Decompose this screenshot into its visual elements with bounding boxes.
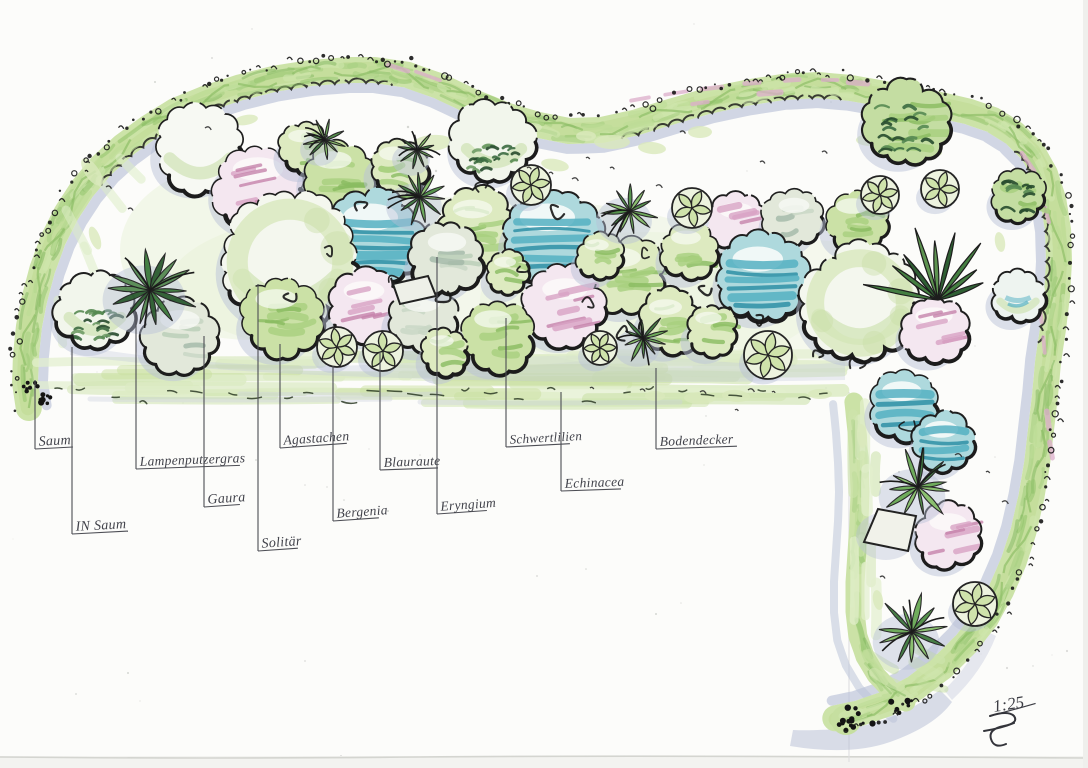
svg-text:Solitär: Solitär xyxy=(261,534,302,552)
svg-text:Blauraute: Blauraute xyxy=(383,453,440,470)
svg-text:IN Saum: IN Saum xyxy=(74,517,126,535)
svg-text:Gaura: Gaura xyxy=(207,490,246,508)
svg-text:Bodendecker: Bodendecker xyxy=(659,431,734,449)
svg-text:Saum: Saum xyxy=(38,433,71,450)
svg-text:Echinacea: Echinacea xyxy=(563,474,624,491)
